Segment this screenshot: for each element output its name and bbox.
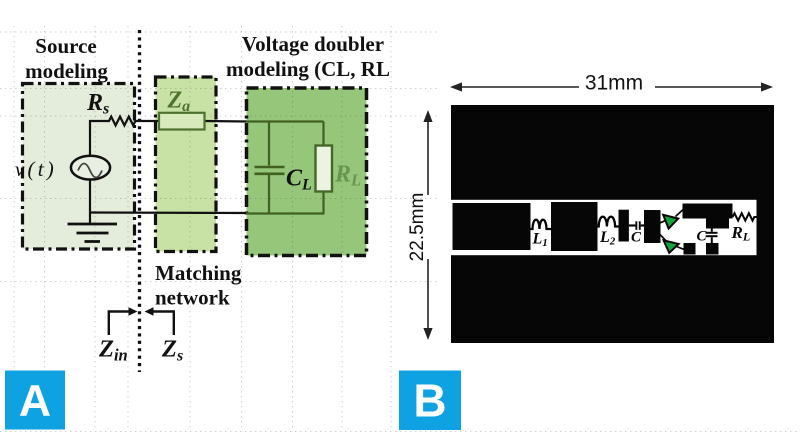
svg-text:22.5mm: 22.5mm [407, 193, 428, 262]
svg-text:network: network [155, 286, 230, 310]
svg-text:Source: Source [35, 34, 96, 58]
svg-text:B: B [413, 375, 446, 427]
svg-text:modeling: modeling [25, 59, 108, 83]
svg-text:Zs: Zs [161, 336, 183, 365]
svg-text:modeling (CL, RL: modeling (CL, RL [226, 57, 390, 81]
svg-text:C: C [631, 230, 642, 246]
svg-text:v(t): v(t) [15, 157, 57, 181]
svg-text:Voltage doubler: Voltage doubler [242, 32, 384, 56]
svg-text:C: C [697, 229, 708, 245]
svg-text:Matching: Matching [155, 261, 242, 285]
svg-text:A: A [19, 377, 51, 426]
svg-text:Zin: Zin [98, 336, 128, 365]
svg-text:31mm: 31mm [585, 72, 643, 95]
